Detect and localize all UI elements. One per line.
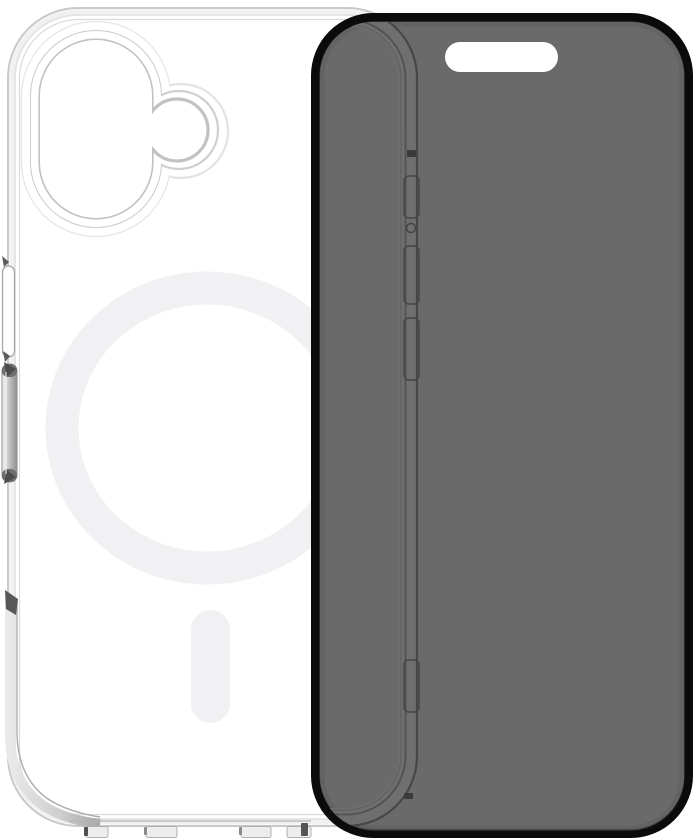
earpiece-cutout	[445, 42, 558, 72]
product-photo	[0, 0, 699, 840]
speaker-notch	[146, 827, 177, 838]
port-notch	[241, 827, 271, 838]
side-button-slot	[3, 266, 15, 357]
product-photo-canvas	[0, 0, 699, 840]
speaker-notch	[86, 827, 108, 838]
screen-glass	[316, 18, 689, 834]
magsafe-alignment-line	[191, 610, 230, 723]
volume-button	[2, 364, 17, 482]
